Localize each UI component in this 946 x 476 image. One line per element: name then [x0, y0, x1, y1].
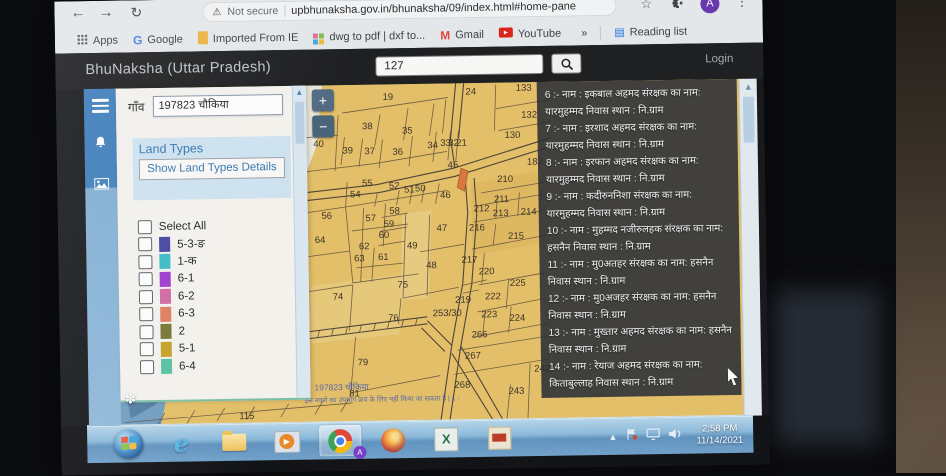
legend-label: 1-क	[177, 254, 196, 269]
record-item: 12 :- नाम : मु0अजहर संरक्षक का नाम: हसनै…	[548, 289, 732, 325]
land-type-legend: Select All 5-3-ङ1-क6-16-26-325-16-4	[138, 217, 209, 376]
google-g-icon: G	[133, 33, 143, 47]
legend-row-select-all: Select All	[138, 217, 207, 236]
legend-checkbox-4[interactable]	[139, 307, 153, 321]
plot-number-223: 223	[481, 309, 497, 320]
legend-color-swatch	[160, 324, 171, 339]
land-types-box: Land Types Show Land Types Details	[132, 136, 291, 200]
bookmark-item[interactable]: Apps	[71, 31, 124, 50]
plot-number-62: 62	[359, 241, 370, 252]
plot-number-212: 212	[474, 203, 490, 214]
legend-label: 5-1	[179, 343, 196, 355]
not-secure-warning-icon[interactable]: ⚠	[212, 6, 221, 17]
plot-number-24: 24	[465, 86, 476, 97]
bookmark-item[interactable]: ▤Reading list	[608, 23, 693, 41]
page-scroll-thumb[interactable]	[743, 97, 755, 143]
taskbar-clock[interactable]: 2:58 PM 11/14/2021	[690, 423, 749, 447]
reading-list-icon: ▤	[614, 26, 625, 39]
plot-number-268: 268	[454, 380, 470, 391]
record-item: 10 :- नाम : मुहम्मद नजीरुलहक संरक्षक का …	[547, 221, 731, 257]
plot-number-58: 58	[389, 206, 400, 217]
monitor-bezel	[770, 290, 880, 445]
plot-number-61: 61	[378, 252, 389, 263]
plot-number-45: 45	[448, 160, 459, 171]
plot-number-50: 50	[415, 183, 426, 194]
bookmark-item[interactable]: MGmail	[434, 25, 490, 44]
bookmark-item[interactable]: YouTube	[493, 25, 567, 43]
bookmark-item[interactable]: »	[570, 25, 593, 41]
plot-number-54: 54	[350, 189, 361, 200]
gmail-m-icon: M	[440, 28, 450, 42]
plot-number-211: 211	[494, 194, 509, 205]
legend-color-swatch	[160, 289, 171, 304]
plot-number-222: 222	[485, 291, 501, 302]
legend-label: 6-1	[178, 273, 195, 285]
legend-row-5: 2	[139, 322, 208, 341]
plot-number-217: 217	[461, 254, 477, 265]
plot-number-210: 210	[497, 174, 513, 185]
plot-number-224: 224	[509, 313, 525, 324]
basemap-image-icon[interactable]	[94, 176, 109, 194]
plot-search-input[interactable]	[375, 54, 543, 77]
record-item: 9 :- नाम : कदीरुननिशा संरक्षक का नाम: या…	[546, 187, 730, 223]
profile-avatar[interactable]: A	[700, 0, 719, 13]
plot-number-19: 19	[382, 92, 393, 103]
legend-row-3: 6-2	[139, 287, 208, 306]
legend-label: 6-2	[178, 290, 195, 302]
village-label: गाँव	[128, 98, 145, 115]
back-icon[interactable]: ←	[70, 4, 85, 22]
page-scroll-up-icon[interactable]: ▲	[740, 82, 757, 92]
youtube-icon	[499, 27, 513, 40]
monitor-screen: ← → ↻ ⚠ Not secure upbhunaksha.gov.in/bh…	[54, 0, 769, 476]
taskbar-firefox-icon[interactable]	[372, 424, 414, 456]
search-icon	[560, 57, 573, 70]
photo-background-wall	[896, 0, 946, 473]
plot-number-63: 63	[354, 253, 365, 264]
content-area: 197823 चौकिया इस नक्शे का उपयोग क्रय के …	[56, 78, 769, 426]
plot-number-34: 34	[427, 140, 438, 151]
address-divider	[284, 5, 285, 17]
map-settings-gear-icon[interactable]: ✽	[124, 390, 136, 407]
plot-number-132: 132	[521, 110, 537, 121]
dwg-icon	[313, 29, 324, 44]
plot-number-225: 225	[510, 278, 526, 289]
plot-number-21: 21	[456, 138, 467, 149]
legend-row-1: 1-क	[138, 252, 207, 271]
search-button[interactable]	[551, 53, 581, 73]
display-settings-icon[interactable]	[646, 427, 660, 445]
menu-hamburger-icon[interactable]	[91, 99, 108, 113]
plot-number-40: 40	[313, 139, 324, 150]
legend-row-2: 6-1	[139, 270, 208, 289]
clock-date: 11/14/2021	[696, 434, 743, 446]
mouse-cursor	[726, 367, 742, 392]
record-item: 6 :- नाम : इकबाल अहमद संरक्षक का नाम: या…	[545, 85, 729, 121]
plot-number-59: 59	[383, 219, 394, 230]
map-village-stamp: 197823 चौकिया	[314, 382, 369, 393]
clock-time: 2:58 PM	[702, 423, 738, 435]
plot-owner-records-panel: 6 :- नाम : इकबाल अहमद संरक्षक का नाम: या…	[537, 79, 742, 398]
bookmark-label: Gmail	[455, 28, 484, 40]
plot-number-48: 48	[426, 260, 437, 271]
panel-scroll-thumb[interactable]	[295, 102, 305, 144]
legend-checkbox-1[interactable]	[138, 255, 152, 269]
plot-number-51: 51	[404, 184, 415, 195]
page-title: BhuNaksha (Uttar Pradesh)	[85, 59, 271, 78]
plot-number-133: 133	[516, 83, 532, 94]
show-land-types-details-button[interactable]: Show Land Types Details	[139, 157, 285, 180]
address-bar[interactable]: ⚠ Not secure upbhunaksha.gov.in/bhunaksh…	[202, 0, 616, 22]
taskbar-media-player-icon[interactable]: ▶	[266, 426, 308, 458]
browser-menu-icon[interactable]: ⋮	[735, 0, 748, 10]
left-icon-strip	[84, 89, 121, 426]
select-all-label: Select All	[159, 220, 206, 233]
legend-color-swatch	[161, 359, 172, 374]
plot-number-36: 36	[392, 147, 403, 158]
plot-number-46: 46	[440, 190, 451, 201]
plot-number-60: 60	[379, 230, 390, 241]
record-item: 11 :- नाम : मु0अतहर संरक्षक का नाम: हसनै…	[547, 255, 731, 291]
panel-scroll-up-icon[interactable]: ▲	[293, 88, 306, 97]
legend-checkbox-7[interactable]	[140, 360, 154, 374]
plot-number-64: 64	[315, 235, 326, 246]
legend-row-4: 6-3	[139, 305, 208, 324]
plot-number-38: 38	[362, 121, 373, 132]
login-link[interactable]: Login	[705, 53, 733, 65]
legend-checkbox-5[interactable]	[139, 325, 153, 339]
bookmarks-divider	[600, 26, 601, 40]
legend-row-0: 5-3-ङ	[138, 235, 207, 254]
plot-number-76: 76	[388, 313, 399, 324]
bookmark-item[interactable]: GGoogle	[127, 30, 189, 49]
legend-label: 6-4	[179, 360, 196, 372]
plot-number-39: 39	[342, 145, 353, 156]
taskbar-cad-viewer-icon[interactable]	[478, 422, 520, 454]
legend-checkbox-0[interactable]	[138, 237, 152, 251]
plot-number-243: 243	[508, 386, 524, 397]
bookmark-label: Reading list	[630, 25, 688, 38]
plot-number-81: 81	[349, 388, 360, 399]
land-types-title: Land Types	[139, 140, 285, 156]
bookmark-label: YouTube	[518, 27, 561, 40]
legend-color-swatch	[160, 272, 171, 287]
legend-color-swatch	[161, 342, 172, 357]
legend-label: 2	[178, 325, 185, 337]
legend-color-swatch	[159, 237, 170, 252]
record-item: 7 :- नाम : इरशाद अहमद संरक्षक का नाम: या…	[545, 119, 729, 155]
bookmark-label: Google	[147, 33, 183, 46]
bookmark-star-icon[interactable]: ☆	[640, 0, 652, 12]
system-tray: ▲ 2:58 PM 11/14/2021	[608, 416, 749, 455]
legend-checkbox-3[interactable]	[139, 290, 153, 304]
extensions-puzzle-icon[interactable]	[670, 0, 684, 16]
map-zoom-out-button[interactable]: −	[312, 115, 334, 137]
show-hidden-icons-caret[interactable]: ▲	[608, 431, 617, 441]
plot-number-215: 215	[508, 231, 524, 242]
plot-number-115: 115	[239, 411, 254, 422]
notifications-bell-icon[interactable]	[93, 134, 108, 154]
plot-number-220: 220	[479, 266, 495, 277]
taskbar-excel-icon[interactable]: X	[425, 423, 467, 455]
plot-number-57: 57	[365, 213, 376, 224]
legend-color-swatch	[160, 307, 171, 322]
plot-number-266: 266	[472, 329, 488, 340]
ie-folder-icon	[198, 31, 208, 47]
village-select[interactable]: 197823 चौकिया	[152, 94, 282, 117]
plot-number-49: 49	[407, 240, 418, 251]
plot-number-75: 75	[397, 280, 408, 291]
legend-row-7: 6-4	[140, 357, 209, 376]
taskbar-start-button[interactable]	[107, 428, 149, 460]
url-text[interactable]: upbhunaksha.gov.in/bhunaksha/09/index.ht…	[291, 0, 576, 16]
legend-checkbox-6[interactable]	[140, 342, 154, 356]
plot-number-130: 130	[504, 130, 520, 141]
plot-number-56: 56	[321, 211, 332, 222]
bookmark-label: Imported From IE	[213, 31, 299, 44]
record-item: 14 :- नाम : रेयाज अहमद संरक्षक का नाम: क…	[549, 357, 733, 393]
record-item: 13 :- नाम : मुख्तार अहमद संरक्षक का नाम:…	[548, 323, 732, 359]
legend-label: 5-3-ङ	[177, 236, 205, 251]
plot-number-219: 219	[455, 295, 471, 306]
plot-number-267: 267	[465, 350, 481, 361]
bookmark-label: Apps	[93, 34, 118, 46]
taskbar-file-explorer-icon[interactable]	[213, 426, 255, 458]
plot-number-213: 213	[493, 208, 509, 219]
taskbar-internet-explorer-icon[interactable]: e	[160, 427, 202, 459]
bookmark-item[interactable]: Imported From IE	[192, 27, 305, 49]
plot-number-37: 37	[364, 146, 375, 157]
plot-number-74: 74	[333, 292, 344, 303]
layers-sidebar-panel: गाँव 197823 चौकिया Land Types Show Land …	[116, 86, 311, 403]
apps-grid-icon	[77, 34, 88, 48]
map-zoom-in-button[interactable]: +	[312, 89, 334, 111]
plot-number-253/30: 253/30	[433, 308, 462, 319]
select-all-checkbox[interactable]	[138, 220, 152, 234]
plot-number-52: 52	[389, 181, 400, 192]
plot-number-214: 214	[521, 207, 537, 218]
forward-icon[interactable]: →	[98, 4, 113, 22]
legend-checkbox-2[interactable]	[139, 272, 153, 286]
plot-number-47: 47	[437, 223, 448, 234]
legend-label: 6-3	[178, 308, 195, 320]
plot-number-79: 79	[358, 357, 369, 368]
legend-color-swatch	[159, 254, 170, 269]
legend-row-6: 5-1	[140, 340, 209, 359]
action-center-flag-icon[interactable]	[625, 427, 638, 445]
plot-number-216: 216	[469, 222, 485, 233]
security-label[interactable]: Not secure	[227, 5, 278, 18]
record-item: 8 :- नाम : इरफान अहमद संरक्षक का नाम: या…	[546, 153, 730, 189]
bookmark-item[interactable]: dwg to pdf | dxf to...	[307, 26, 431, 47]
reload-icon[interactable]: ↻	[130, 3, 142, 21]
volume-speaker-icon[interactable]	[668, 426, 682, 444]
plot-number-35: 35	[402, 125, 413, 136]
bookmark-label: »	[581, 27, 587, 39]
taskbar-chrome-icon[interactable]: A	[319, 425, 361, 457]
plot-number-55: 55	[362, 178, 373, 189]
bookmark-label: dwg to pdf | dxf to...	[329, 29, 425, 43]
